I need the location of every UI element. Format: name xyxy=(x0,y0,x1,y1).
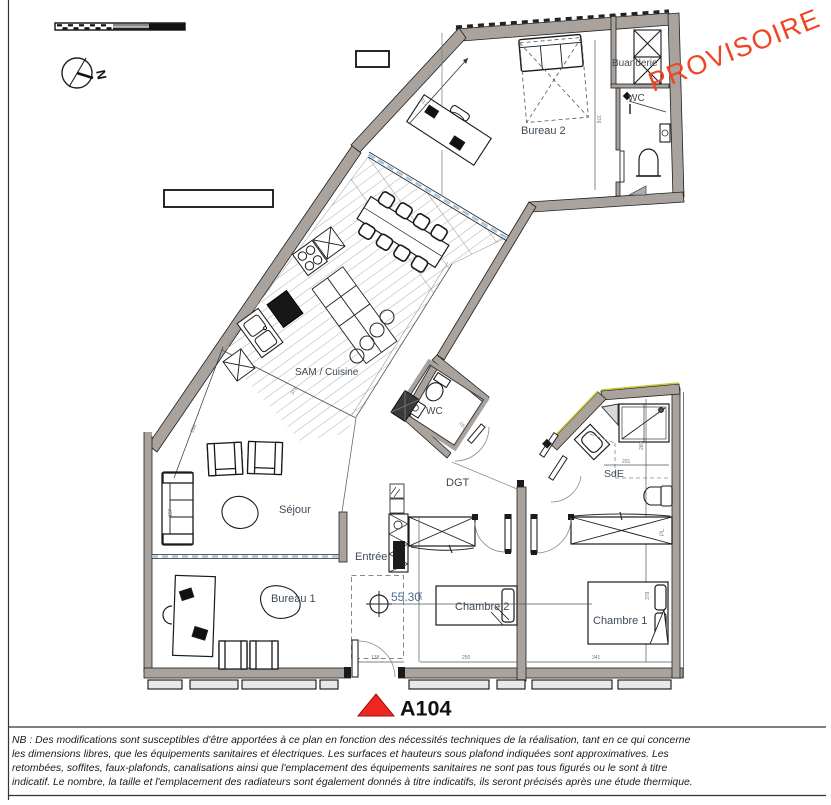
svg-text:157: 157 xyxy=(168,508,174,517)
svg-text:Chambre 1: Chambre 1 xyxy=(593,615,647,627)
svg-text:retombées, soffites, faux-plaf: retombées, soffites, faux-plafonds, cana… xyxy=(12,763,667,774)
svg-text:indicatif. Le nombre, la taill: indicatif. Le nombre, la taille et l'emp… xyxy=(12,777,693,788)
svg-text:378: 378 xyxy=(645,591,651,600)
svg-text:SAM / Cuisine: SAM / Cuisine xyxy=(295,367,359,378)
svg-text:376: 376 xyxy=(595,115,601,124)
svg-text:Chambre 2: Chambre 2 xyxy=(455,601,509,613)
svg-text:les dimensions libres, que les: les dimensions libres, que les équipemen… xyxy=(12,749,669,760)
svg-text:PL: PL xyxy=(660,528,666,536)
svg-text:SdE: SdE xyxy=(604,468,624,480)
svg-text:A104: A104 xyxy=(400,697,451,721)
svg-text:DGT: DGT xyxy=(446,477,470,489)
svg-text:NB : Des modifications sont su: NB : Des modifications sont susceptibles… xyxy=(12,735,691,746)
svg-text:WC: WC xyxy=(426,406,443,417)
svg-text:Entrée: Entrée xyxy=(355,551,387,563)
svg-text:Bureau 1: Bureau 1 xyxy=(271,593,316,605)
svg-text:260: 260 xyxy=(639,441,645,450)
svg-text:250: 250 xyxy=(462,655,471,661)
svg-text:55.30: 55.30 xyxy=(391,590,421,604)
svg-text:Séjour: Séjour xyxy=(279,504,311,516)
svg-text:WC: WC xyxy=(628,93,645,104)
svg-text:341: 341 xyxy=(592,655,601,661)
svg-text:Bureau 2: Bureau 2 xyxy=(521,125,566,137)
svg-text:201: 201 xyxy=(622,459,631,465)
